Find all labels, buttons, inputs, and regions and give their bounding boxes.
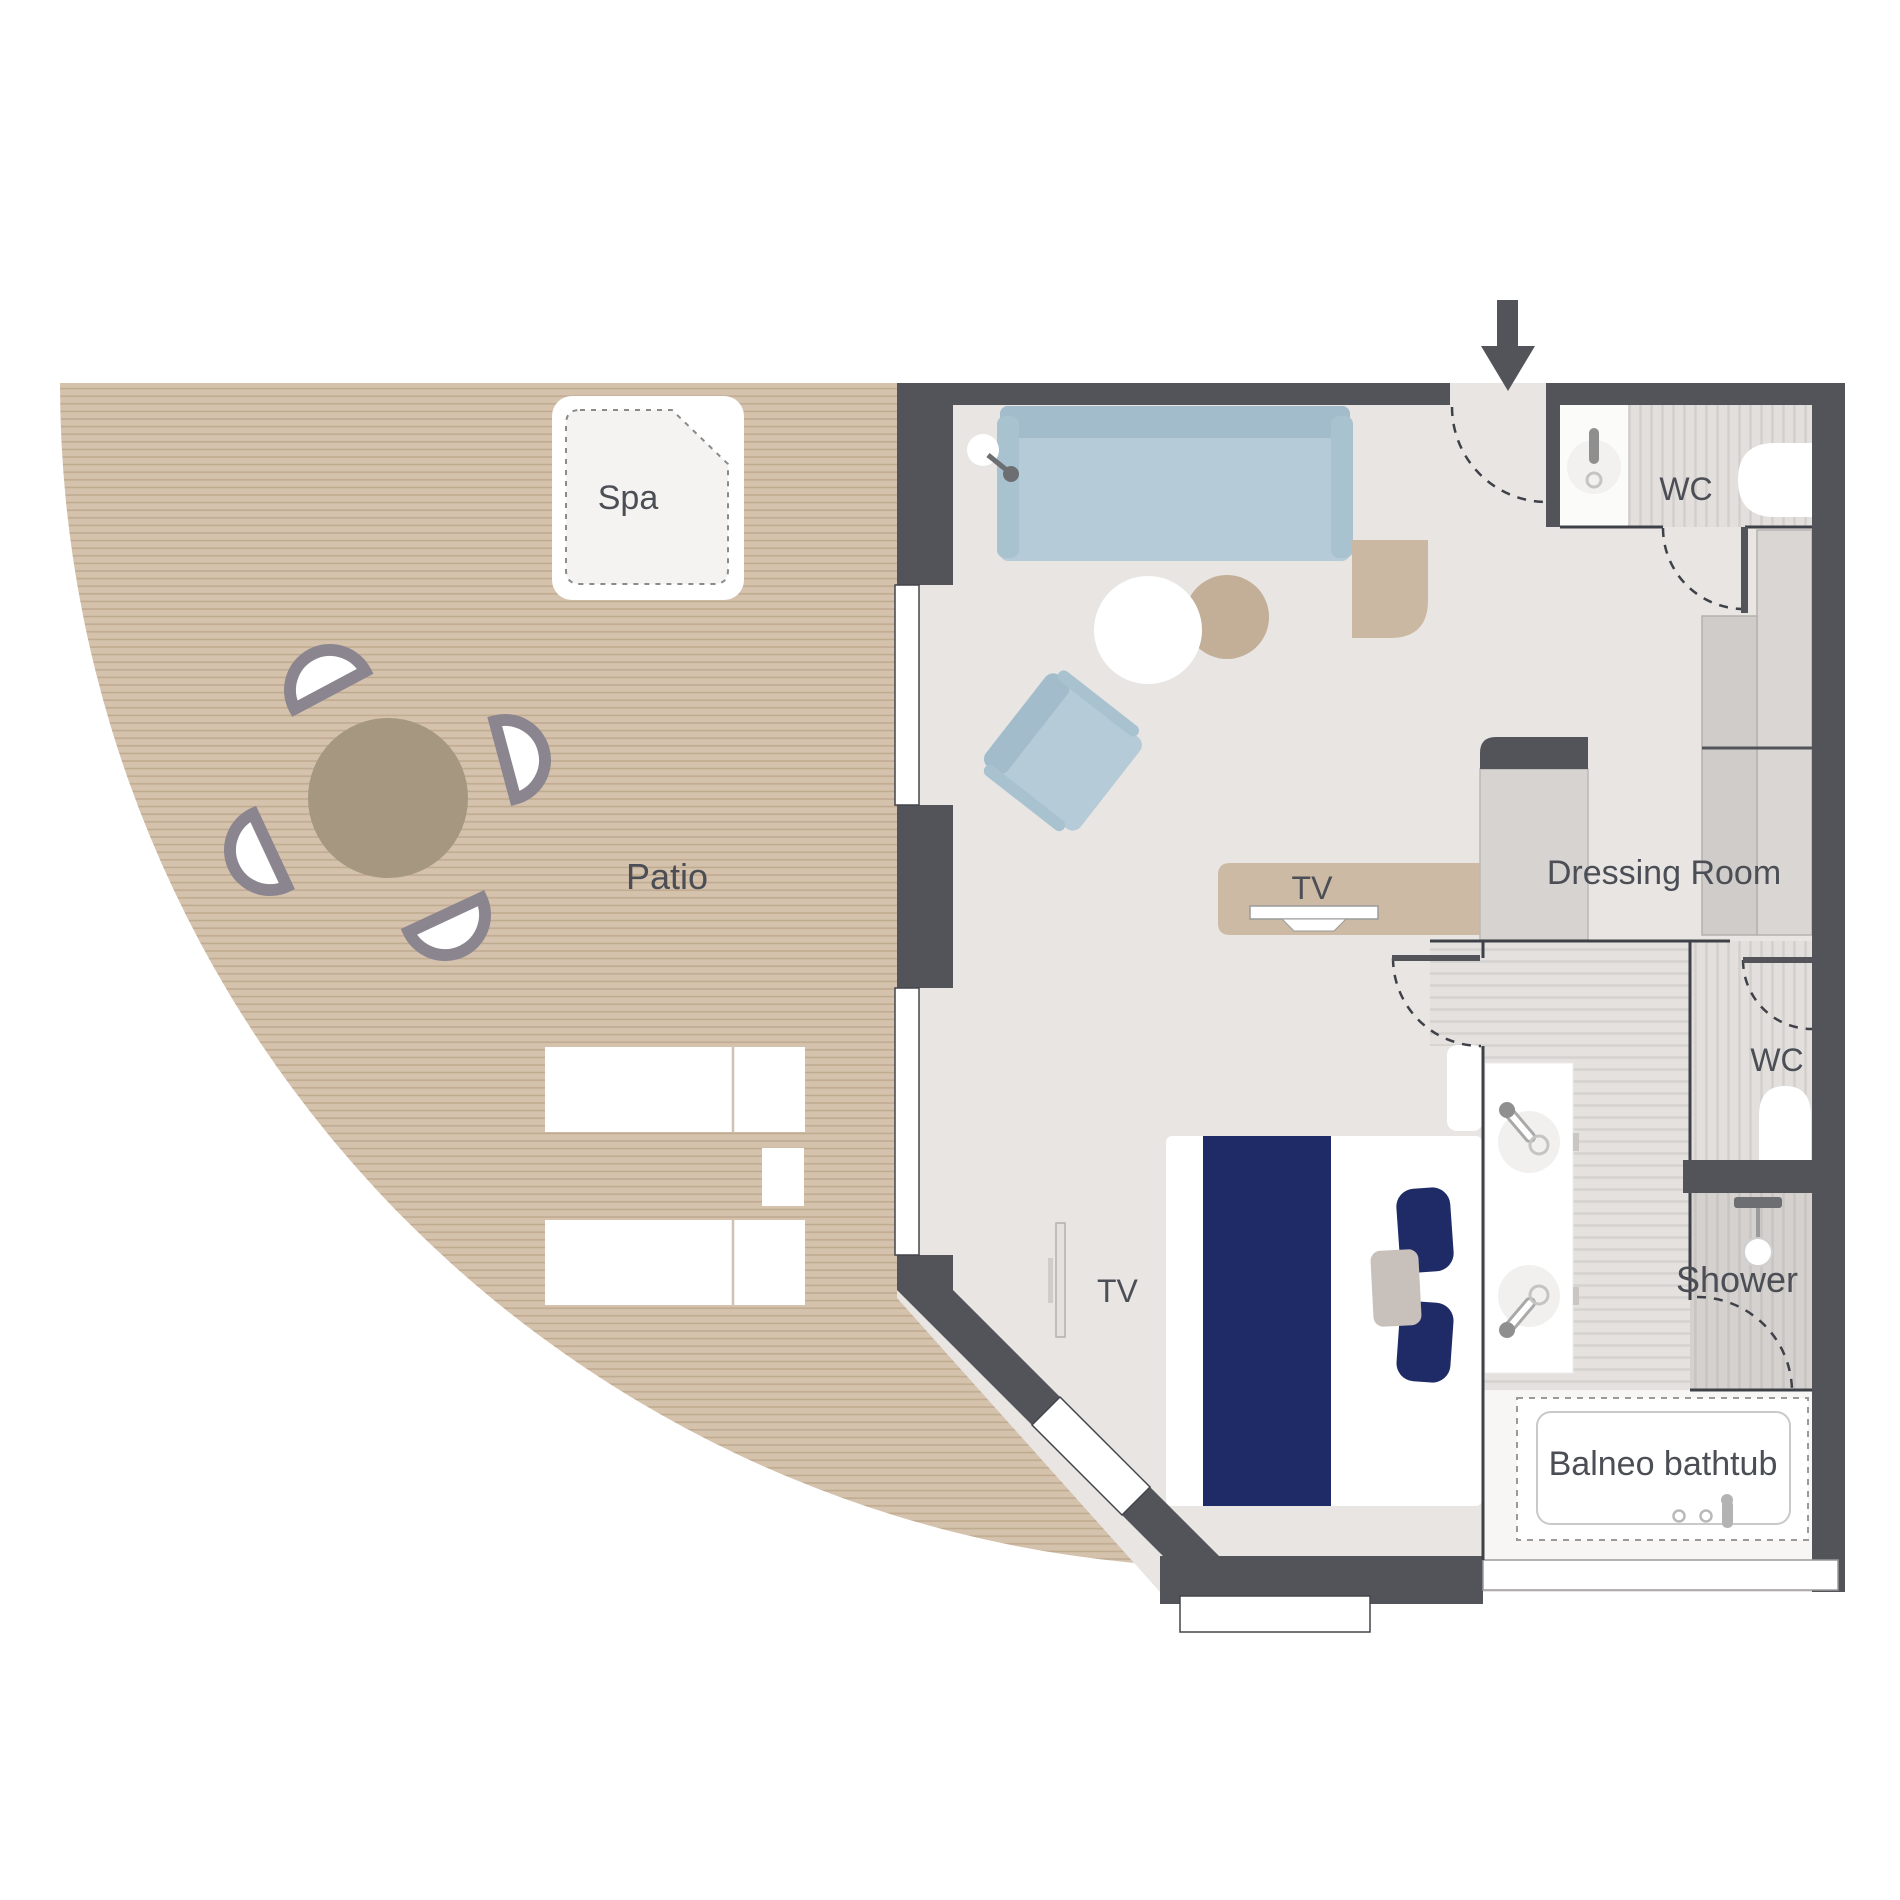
wc-top-door-leaf [1741, 527, 1748, 613]
window-left-1 [895, 585, 919, 805]
sofa [997, 406, 1353, 561]
spa-label: Spa [598, 479, 659, 517]
vanity [1485, 1063, 1579, 1373]
entry-arrow-icon [1481, 300, 1535, 391]
spa-tub: Spa [552, 396, 744, 600]
bed-duvet [1203, 1136, 1331, 1506]
sun-lounger-2 [545, 1220, 805, 1305]
coffee-table-round [1094, 576, 1202, 684]
wc-lower-door-leaf [1743, 957, 1812, 963]
dressing-closet [1480, 737, 1588, 940]
tv-sideboard: TV [1218, 863, 1483, 935]
bathtub-label: Balneo bathtub [1549, 1445, 1778, 1483]
patio-table [308, 718, 468, 878]
floor-plan: Spa Patio [0, 0, 1900, 1900]
wc-lower-label: WC [1750, 1042, 1803, 1078]
bedroom-tv-label: TV [1097, 1273, 1139, 1309]
bedroom-bath-door-leaf [1392, 955, 1480, 961]
window-bottom [1180, 1596, 1370, 1632]
wc-lower-toilet [1759, 1086, 1811, 1160]
bed [1166, 1136, 1482, 1506]
sofa-end-table [1352, 540, 1428, 638]
bed-cushion [1370, 1249, 1422, 1327]
bathtub-bay-sill [1483, 1560, 1838, 1590]
living-tv-label: TV [1292, 870, 1334, 906]
lounger-side-table [762, 1148, 804, 1206]
wc-top-label: WC [1659, 471, 1712, 507]
corridor-door-swing-patch [1447, 1045, 1483, 1131]
sun-lounger-1 [545, 1047, 805, 1132]
wc-top-toilet [1738, 443, 1812, 517]
patio-label: Patio [626, 856, 708, 897]
floor-plan-canvas: Spa Patio [0, 0, 1900, 1900]
shower-label: Shower [1676, 1259, 1798, 1300]
window-left-2 [895, 988, 919, 1255]
dressing-room-label: Dressing Room [1547, 854, 1781, 892]
